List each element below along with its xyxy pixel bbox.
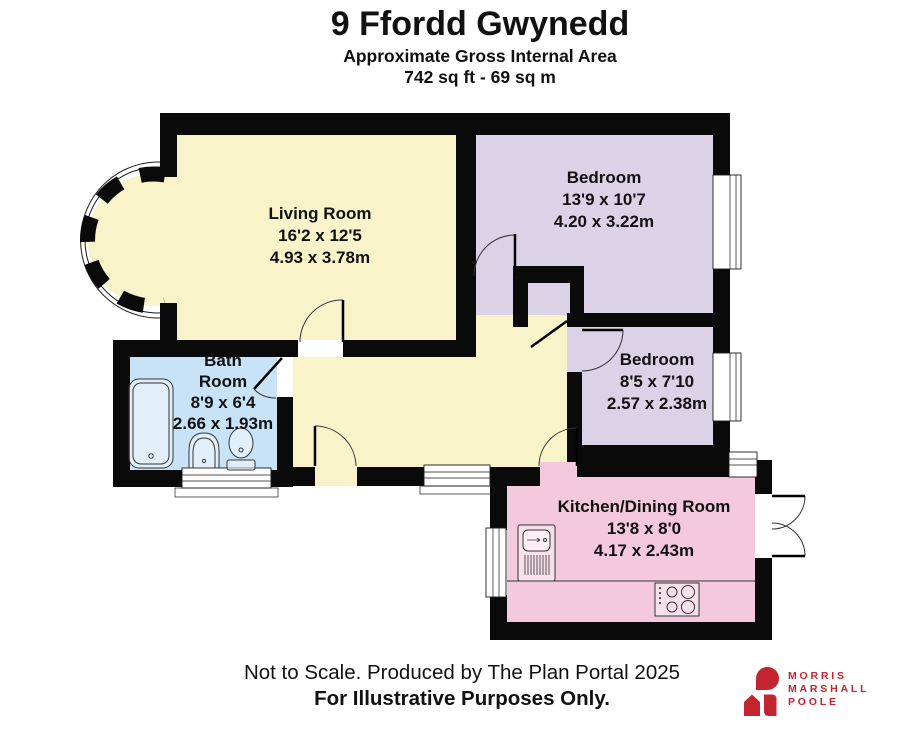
- bathtub-tap: [149, 454, 153, 458]
- bathroom-window: [182, 468, 271, 488]
- basin-tap: [202, 459, 205, 462]
- bedroom-1-window: [713, 175, 741, 269]
- logo-wordmark: MORRIS MARSHALL POOLE: [788, 670, 869, 708]
- logo-line-1: MORRIS: [788, 670, 847, 682]
- hallway-window-sill: [420, 486, 494, 494]
- room-living-room: [177, 135, 456, 340]
- logo-leaf-shape: [764, 695, 777, 717]
- bedroom-1-door-gap: [476, 255, 515, 281]
- bedroom-2-door-gap: [567, 327, 582, 373]
- toilet-bowl: [229, 428, 253, 458]
- front-door-threshold: [315, 467, 357, 486]
- room-bedroom-1: [476, 135, 713, 315]
- french-door-arc-bottom: [772, 523, 805, 556]
- french-door-arc-top: [772, 496, 805, 529]
- logo-line-2: MARSHALL: [788, 683, 869, 695]
- logo-blob-shape: [756, 667, 779, 690]
- logo-mark: [744, 667, 779, 716]
- bedroom-2-window: [713, 353, 741, 421]
- sink-plug: [544, 539, 547, 542]
- kitchen-door-gap: [540, 462, 577, 480]
- hallway-window: [424, 465, 490, 486]
- hall-strip: [513, 327, 567, 363]
- kitchen-top-window: [729, 452, 757, 477]
- room-bedroom-2: [582, 327, 713, 445]
- toilet-flush: [239, 448, 243, 452]
- hallway-floor: [293, 357, 567, 467]
- logo-house-shape: [744, 695, 760, 717]
- bathroom-window-sill: [175, 488, 278, 497]
- floor-plan-page: 9 Ffordd Gwynedd Approximate Gross Inter…: [0, 0, 900, 745]
- agency-logo: MORRIS MARSHALL POOLE: [742, 662, 890, 724]
- hob: [655, 583, 699, 616]
- kitchen-left-window: [486, 528, 506, 597]
- floor-plan-drawing: [0, 0, 900, 745]
- toilet-cistern: [227, 460, 255, 470]
- logo-line-3: POOLE: [788, 696, 839, 708]
